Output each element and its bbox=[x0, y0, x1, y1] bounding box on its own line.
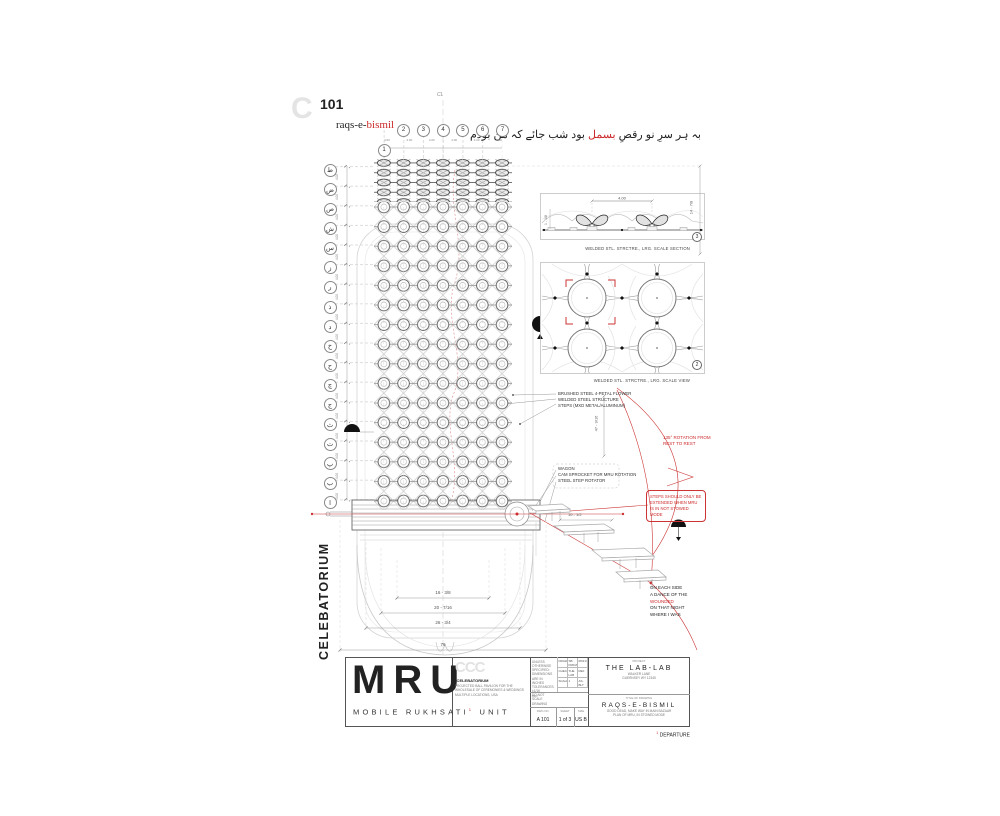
urdu-verse: بہ ہر سرِ نو رقصِ بسمل بود شب جائے کہ من… bbox=[505, 128, 701, 141]
detail1-dim: 4.00 bbox=[618, 196, 627, 201]
size-value: US B bbox=[575, 717, 587, 723]
grid-row-bubble: ج bbox=[324, 398, 337, 411]
footnote: 1 DEPARTURE bbox=[600, 731, 690, 739]
row-spacing-label: 4.00 bbox=[335, 234, 343, 240]
detail-plan-view bbox=[540, 262, 706, 376]
ghost-letter: C bbox=[291, 92, 313, 126]
project-cell: PROJECT THE LAB-LAB WALKER LANE GUERNSEY… bbox=[589, 659, 689, 680]
drawing-title-transliteration: raqs-e-bismil bbox=[336, 119, 394, 131]
poem-line-1: ON EACH SIDE bbox=[650, 585, 710, 592]
sheet-number: 101 bbox=[320, 96, 343, 112]
grid-row-bubble: ز bbox=[324, 261, 337, 274]
grid-col-bubble: 6 bbox=[476, 124, 489, 137]
drawing-sheet: 4.00 1 - 1/8 WELDED STL. STRCTRE., LRG. … bbox=[0, 0, 1000, 816]
signature-rows: DRAWNSB FRIDAY08/21/2043CHECKEDTHE LABRE… bbox=[558, 658, 588, 688]
row-spacing-label: 4.00 bbox=[335, 214, 343, 220]
logo-subtitle: MOBILE RUKHSATI1 UNIT bbox=[353, 707, 510, 717]
grid-row-bubble: د bbox=[324, 320, 337, 333]
top-right-dim-label: 14 - 7/8 bbox=[688, 201, 693, 215]
row-spacing-label: 4.00 bbox=[335, 453, 343, 459]
size-cell: SIZE US B bbox=[575, 709, 587, 723]
detail1-left-dim: 1 - 1/8 bbox=[544, 215, 548, 225]
detail1-ref-bubble: 3 bbox=[692, 232, 702, 242]
row-spacing-label: 4.00 bbox=[335, 174, 343, 180]
tb-hline-3 bbox=[588, 694, 690, 695]
dwg-no-label: DWG NO. bbox=[531, 709, 555, 713]
mechanism-callouts: WAGONCAM SPROCKET FOR MRU ROTATIONSTEEL … bbox=[558, 466, 668, 485]
poem-line-2: A DANCE OF THE WOUNDED bbox=[650, 592, 710, 606]
steps-dim-label: 10 - 1/2 bbox=[568, 512, 582, 517]
row-spacing-label: 4.00 bbox=[335, 373, 343, 379]
row-spacing-label: 4.00 bbox=[335, 433, 343, 439]
org-name: *CELEBATORIUM bbox=[455, 678, 488, 683]
raqs-black: raqs-e- bbox=[336, 119, 367, 131]
project-addr2: GUERNSEY WY 12345 bbox=[589, 676, 689, 680]
col-spacing-label: 4.00 bbox=[384, 138, 390, 142]
title-header: TITLE OF DRAWING bbox=[589, 696, 689, 700]
poem-line-4: WHERE I WAS bbox=[650, 612, 710, 619]
col-spacing-label: 4.00 bbox=[474, 138, 480, 142]
size-label: SIZE bbox=[575, 709, 587, 713]
footnote-ref: 1 bbox=[656, 731, 658, 735]
row-spacing-dims: 4.004.004.004.004.004.004.004.004.004.00… bbox=[336, 173, 342, 500]
row-spacing-label: 4.00 bbox=[335, 393, 343, 399]
col-spacing-label: 4.00 bbox=[496, 138, 502, 142]
base-dim-3: 26 - 3/4 bbox=[425, 620, 461, 625]
row-spacing-label: 4.00 bbox=[335, 294, 343, 300]
base-dim-1: 16 - 3/8 bbox=[425, 590, 461, 595]
detail1-caption: WELDED STL. STRCTRE., LRG. SCALE SECTION bbox=[560, 246, 690, 251]
grid-row-bubble: ت bbox=[324, 438, 337, 451]
col-spacing-label: 4.00 bbox=[406, 138, 412, 142]
sheet-cell: SHEET 1 of 3 bbox=[557, 709, 573, 723]
rev-label: REV bbox=[532, 694, 538, 698]
material-callout-line: STEPS (MXD METAL/ALUMINUM) bbox=[558, 403, 668, 409]
row-spacing-label: 4.00 bbox=[335, 274, 343, 280]
row-spacing-label: 4.00 bbox=[335, 254, 343, 260]
grid-row-bubble: ث bbox=[324, 418, 337, 431]
poem-line-3: ON THAT NIGHT bbox=[650, 605, 710, 612]
poem-red-word: WOUNDED bbox=[650, 599, 674, 604]
base-dim-2: 20 - 7/16 bbox=[423, 605, 463, 610]
urdu-verse-red: بسمل bbox=[588, 129, 616, 141]
ghost-ccc: CCC bbox=[455, 659, 485, 676]
grid-row-bubble: س bbox=[324, 242, 337, 255]
logo-mru: MRU bbox=[352, 658, 467, 703]
detail-section-view: 4.00 1 - 1/8 bbox=[540, 193, 706, 245]
steps-warning-note: STEPS SHOULD ONLY BE EXTENDED WHEN MRU I… bbox=[646, 490, 706, 522]
drawing-title: RAQS-E-BISMIL bbox=[589, 702, 689, 709]
col-spacing-label: 4.00 bbox=[429, 138, 435, 142]
detail2-caption: WELDED STL. STRCTRE., LRG. SCALE VIEW bbox=[560, 378, 690, 383]
row-spacing-label: 4.00 bbox=[335, 313, 343, 319]
grid-row-bubble: ر bbox=[324, 281, 337, 294]
tolerance-line: DIMENSIONS ARE IN INCHES bbox=[532, 672, 555, 684]
drawing-title-cell: TITLE OF DRAWING RAQS-E-BISMIL GOOD DEAD… bbox=[589, 696, 689, 717]
tolerance-line: UNLESS OTHERWISE SPECIFIED: bbox=[532, 660, 555, 672]
row-spacing-label: 4.00 bbox=[335, 413, 343, 419]
title-sub2: PLAN OF MRU, IN STOWED MODE bbox=[589, 713, 689, 717]
signature-row: DRAWNSB FRIDAY08/21/2043 bbox=[558, 658, 588, 668]
poem-note: ON EACH SIDE A DANCE OF THE WOUNDED ON T… bbox=[650, 585, 710, 619]
row-spacing-label: 4.00 bbox=[335, 353, 343, 359]
urdu-verse-a: بہ ہر سرِ نو رقصِ bbox=[619, 129, 701, 141]
tb-hline-1 bbox=[530, 692, 588, 693]
row-spacing-label: 4.00 bbox=[335, 194, 343, 200]
raqs-red: bismil bbox=[367, 119, 395, 131]
grid-col-bubble: 2 bbox=[397, 124, 410, 137]
column-spacing-dims: 4.004.004.004.004.004.00 bbox=[384, 138, 502, 142]
tolerance-block: UNLESS OTHERWISE SPECIFIED:DIMENSIONS AR… bbox=[532, 660, 555, 706]
lattice-elevation bbox=[374, 158, 512, 510]
grid-row-bubble: خ bbox=[324, 340, 337, 353]
signature-row: SCALE1AS-BLT bbox=[558, 678, 588, 688]
material-callouts: BRUSHED STEEL 4-PETAL FLOWERWELDED STEEL… bbox=[558, 391, 668, 410]
mechanism-callout-line: STEEL STEP ROTATOR bbox=[558, 478, 668, 484]
col-spacing-label: 4.00 bbox=[451, 138, 457, 142]
grid-row-bubble: چ bbox=[324, 379, 337, 392]
base-dim-4: 76 bbox=[433, 642, 453, 647]
footnote-text: DEPARTURE bbox=[660, 733, 690, 739]
footnote-marker: 1 bbox=[469, 707, 474, 712]
org-line1: PROJECTED BALL PAVILION FOR THE WHOLESAL… bbox=[455, 684, 527, 692]
sheet-label: SHEET bbox=[557, 709, 573, 713]
grid-col-bubble-1: 1 bbox=[378, 144, 391, 157]
grid-col-bubble: 4 bbox=[437, 124, 450, 137]
tb-hline-2 bbox=[530, 707, 588, 708]
grid-col-bubble: 3 bbox=[417, 124, 430, 137]
height-dim-label: 47 - 9/16 bbox=[593, 416, 598, 432]
grid-col-bubble: 7 bbox=[496, 124, 509, 137]
grid-row-bubble: ح bbox=[324, 359, 337, 372]
row-spacing-label: 4.00 bbox=[335, 473, 343, 479]
row-spacing-label: 4.00 bbox=[335, 493, 343, 499]
dwg-no-cell: DWG NO. A 101 bbox=[531, 709, 555, 723]
row-spacing-label: 4.00 bbox=[335, 333, 343, 339]
signature-row: CHECKEDTHE LABREF bbox=[558, 668, 588, 678]
project-header: PROJECT bbox=[589, 659, 689, 663]
grid-col-bubble: 5 bbox=[456, 124, 469, 137]
centerline-mark: CL bbox=[437, 92, 443, 98]
rotation-note: 135° ROTATION FROM REST TO REST bbox=[663, 435, 711, 448]
detail2-ref-bubble: 2 bbox=[692, 360, 702, 370]
column-grid-bubbles: 234567 bbox=[397, 124, 509, 137]
project-name: THE LAB-LAB bbox=[589, 665, 689, 672]
org-line2: MULTIPLE LOCATIONS, USA bbox=[455, 693, 527, 697]
side-title-celebatorium: CELEBATORIUM bbox=[317, 560, 331, 660]
grid-row-bubble: ذ bbox=[324, 301, 337, 314]
grid-row-bubble: پ bbox=[324, 457, 337, 470]
sheet-value: 1 of 3 bbox=[557, 717, 573, 723]
dwg-no-value: A 101 bbox=[531, 717, 555, 723]
